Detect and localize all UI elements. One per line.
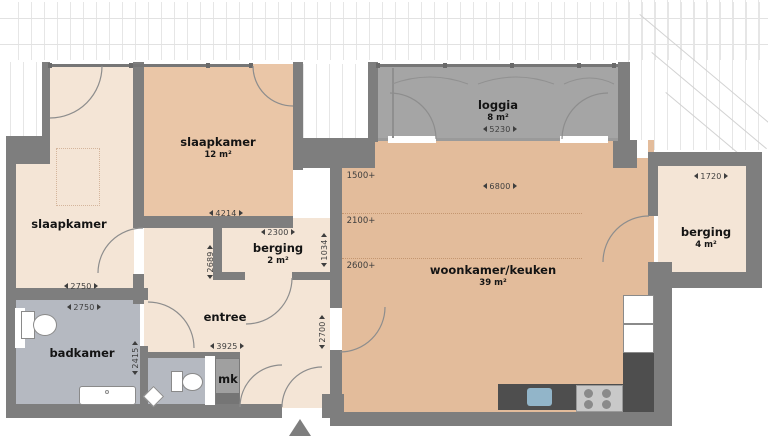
door-arc [246,278,292,324]
floor-plan: slaapkamer slaapkamer12 m² loggia8 m² be… [0,0,768,443]
door-arc [98,228,143,273]
awning-arc [392,77,468,84]
door-swing-arcs [0,0,768,443]
dim-hall-depth: 2689 [205,230,215,294]
label-loggia: loggia8 m² [478,99,518,123]
dim-berging-small-width: 2300 [257,227,299,237]
label-entree: entree [204,311,247,325]
awning-arc [564,78,614,84]
door-arc [390,93,436,139]
ceiling-height-label: 2100+ [347,216,376,226]
label-badkamer: badkamer [49,347,114,361]
dim-slaapkamer-left-width: 2750 [58,281,104,291]
entrance-arrow-icon [289,419,311,436]
door-arc [282,367,322,407]
dim-entree-width: 3925 [204,341,250,351]
door-arc [50,66,102,118]
label-berging-right: berging4 m² [681,226,731,250]
door-arc [253,66,293,106]
label-berging-small: berging2 m² [253,242,303,266]
label-slaapkamer-left: slaapkamer [31,218,106,232]
label-woonkamer: woonkamer/keuken39 m² [430,264,556,288]
door-arc [240,365,282,407]
label-meterkast: mk [218,373,238,387]
dim-entree-depth: 2700 [317,292,327,372]
door-arc [148,302,194,348]
door-arc [340,307,385,352]
ceiling-height-label: 2600+ [347,261,376,271]
label-slaapkamer-top: slaapkamer12 m² [180,136,255,160]
ceiling-height-label: 1500+ [347,171,376,181]
door-arc [603,216,649,262]
door-arc [562,93,608,139]
dim-badkamer-width: 2750 [61,302,107,312]
dim-woonkamer-width: 6800 [477,181,523,191]
dim-berging-right-width: 1720 [689,171,733,181]
dim-slaapkamer-top-width: 4214 [203,208,249,218]
awning-arc [478,77,554,84]
dim-loggia-width: 5230 [477,124,523,134]
dim-badkamer-depth: 2415 [130,332,140,384]
dim-berging-small-depth: 1034 [319,227,329,273]
